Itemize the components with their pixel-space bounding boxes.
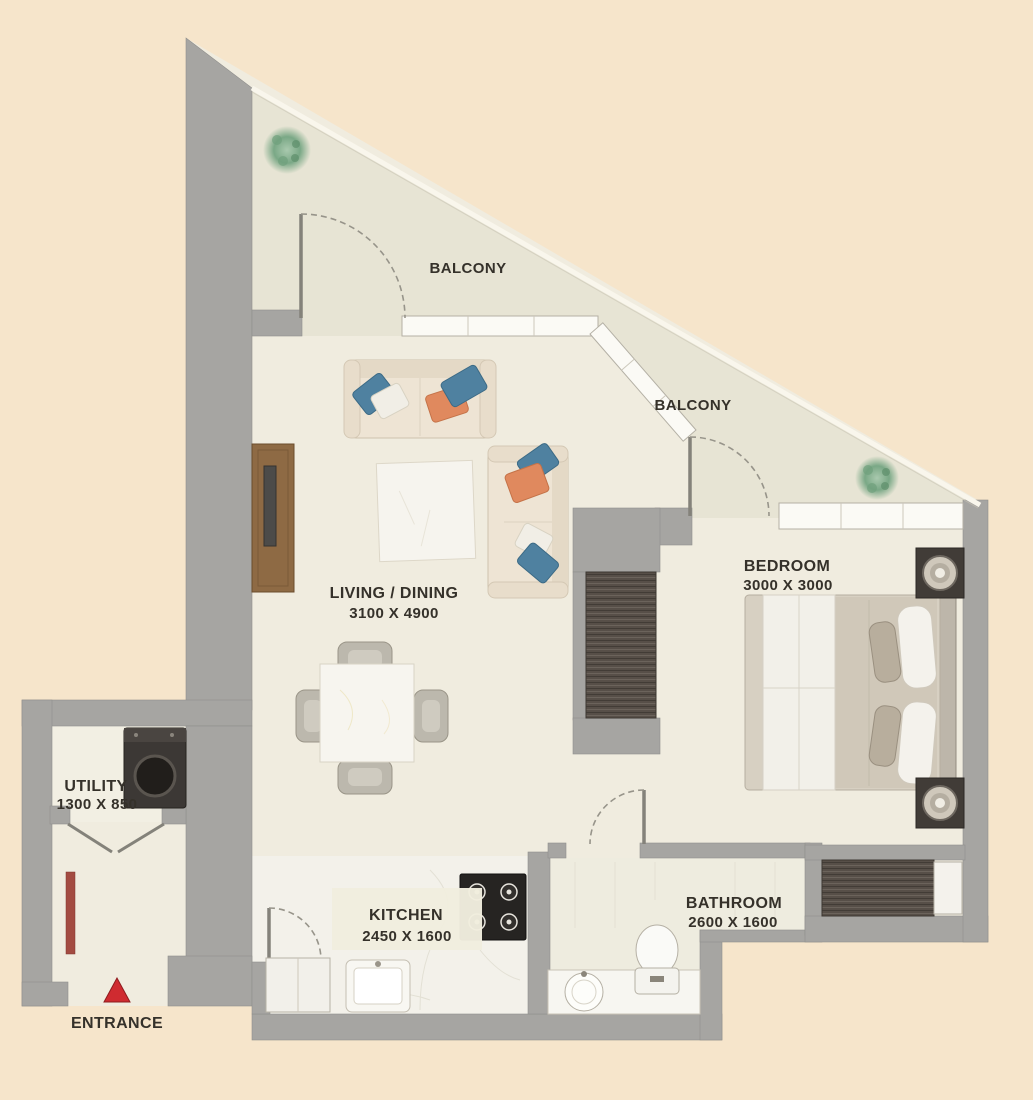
- wall-entrance-right: [168, 956, 252, 1006]
- plant-foliage: [855, 456, 899, 500]
- wall-bath-right-lower: [700, 930, 722, 1040]
- wall-closet-left: [573, 572, 586, 720]
- tv-unit: [252, 444, 294, 592]
- plant-leaf: [278, 156, 288, 166]
- bathroom-label: BATHROOM: [686, 895, 782, 912]
- utility-dims: 1300 X 850: [57, 796, 138, 813]
- chair-seat: [304, 700, 322, 732]
- rug: [376, 460, 475, 561]
- chair-seat: [422, 700, 440, 732]
- sofa-armrest: [480, 360, 496, 438]
- burner-center: [507, 890, 512, 895]
- bed-pillow-white: [896, 701, 937, 786]
- burner-center: [507, 920, 512, 925]
- floor-plan-canvas: BALCONY BALCONY LIVING / DINING 3100 X 4…: [0, 0, 1033, 1100]
- plant-leaf: [867, 483, 877, 493]
- bedroom-label: BEDROOM: [744, 558, 830, 575]
- wall-connector: [700, 930, 822, 942]
- plant-leaf: [863, 465, 873, 475]
- balcony-right-label: BALCONY: [655, 397, 732, 414]
- corridor-wardrobe: [586, 572, 656, 718]
- wall-living-top-corner: [252, 310, 302, 336]
- sofa-armrest: [488, 582, 568, 598]
- rug-body: [376, 460, 475, 561]
- sink-bowl: [354, 968, 402, 1004]
- lamp-bulb: [935, 798, 945, 808]
- plant-right: [855, 456, 899, 500]
- nightstand-bottom: [916, 778, 964, 828]
- chair-seat: [348, 768, 382, 786]
- washer-knob: [134, 733, 138, 737]
- bedroom-window: [779, 503, 963, 529]
- sink-faucet: [375, 961, 381, 967]
- plant-top: [263, 126, 311, 174]
- wall-wardrobe-strip: [805, 845, 965, 860]
- wall-kitchen-bottom: [252, 1014, 722, 1040]
- nightstand-top: [916, 548, 964, 598]
- wall-closet-top: [573, 508, 660, 572]
- bedroom-wardrobe: [822, 860, 934, 916]
- bathroom-dims: 2600 X 1600: [688, 914, 777, 931]
- plant-foliage: [263, 126, 311, 174]
- toilet-flush: [650, 976, 664, 982]
- plant-leaf: [292, 140, 300, 148]
- lamp-bulb: [935, 568, 945, 578]
- bed: [745, 585, 956, 800]
- plant-leaf: [881, 482, 889, 490]
- toilet: [635, 925, 679, 994]
- dining-table: [320, 664, 414, 762]
- washer-knob: [170, 733, 174, 737]
- wall-kitchen-bath: [528, 852, 550, 1014]
- sofa-back: [552, 446, 568, 598]
- wall-utility-door-stub-right: [162, 806, 186, 824]
- balcony-top-label: BALCONY: [430, 260, 507, 277]
- living-label: LIVING / DINING: [330, 585, 459, 602]
- sofa-vertical: [488, 442, 568, 598]
- washer-drum: [135, 756, 175, 796]
- entrance-label: ENTRANCE: [71, 1015, 163, 1032]
- wall-bath-top-right: [640, 843, 810, 858]
- wall-bedroom-right: [963, 500, 988, 942]
- floor-plan-page: BALCONY BALCONY LIVING / DINING 3100 X 4…: [0, 0, 1033, 1100]
- sofa-horizontal: [344, 360, 496, 438]
- wall-bedroom-bottom: [805, 916, 988, 942]
- bedroom-dims: 3000 X 3000: [743, 577, 832, 594]
- utility-label: UTILITY: [64, 778, 127, 795]
- wall-bath-top-left: [548, 843, 566, 858]
- living-window: [402, 316, 598, 336]
- hall-cabinet: [66, 872, 75, 954]
- wall-left: [186, 38, 252, 710]
- wall-closet-bottom: [573, 718, 660, 754]
- bedroom-cabinet: [934, 862, 962, 914]
- wall-hall-column: [186, 726, 252, 984]
- wall-outer-left: [22, 700, 52, 1006]
- fridge: [266, 958, 330, 1012]
- kitchen-sink: [346, 960, 410, 1012]
- wall-bedroom-top-stub: [655, 508, 692, 545]
- wall-utility-top: [22, 700, 252, 726]
- vanity-sink: [565, 973, 603, 1011]
- plant-leaf: [882, 468, 890, 476]
- tv-screen: [264, 466, 276, 546]
- kitchen-dims: 2450 X 1600: [362, 928, 451, 945]
- bed-pillow-white: [896, 605, 937, 690]
- washer-panel: [124, 728, 186, 742]
- living-dims: 3100 X 4900: [349, 605, 438, 622]
- vanity-faucet: [581, 971, 587, 977]
- wall-entrance-left: [22, 982, 68, 1006]
- kitchen-label: KITCHEN: [369, 907, 443, 924]
- plant-leaf: [272, 135, 282, 145]
- plant-leaf: [291, 154, 299, 162]
